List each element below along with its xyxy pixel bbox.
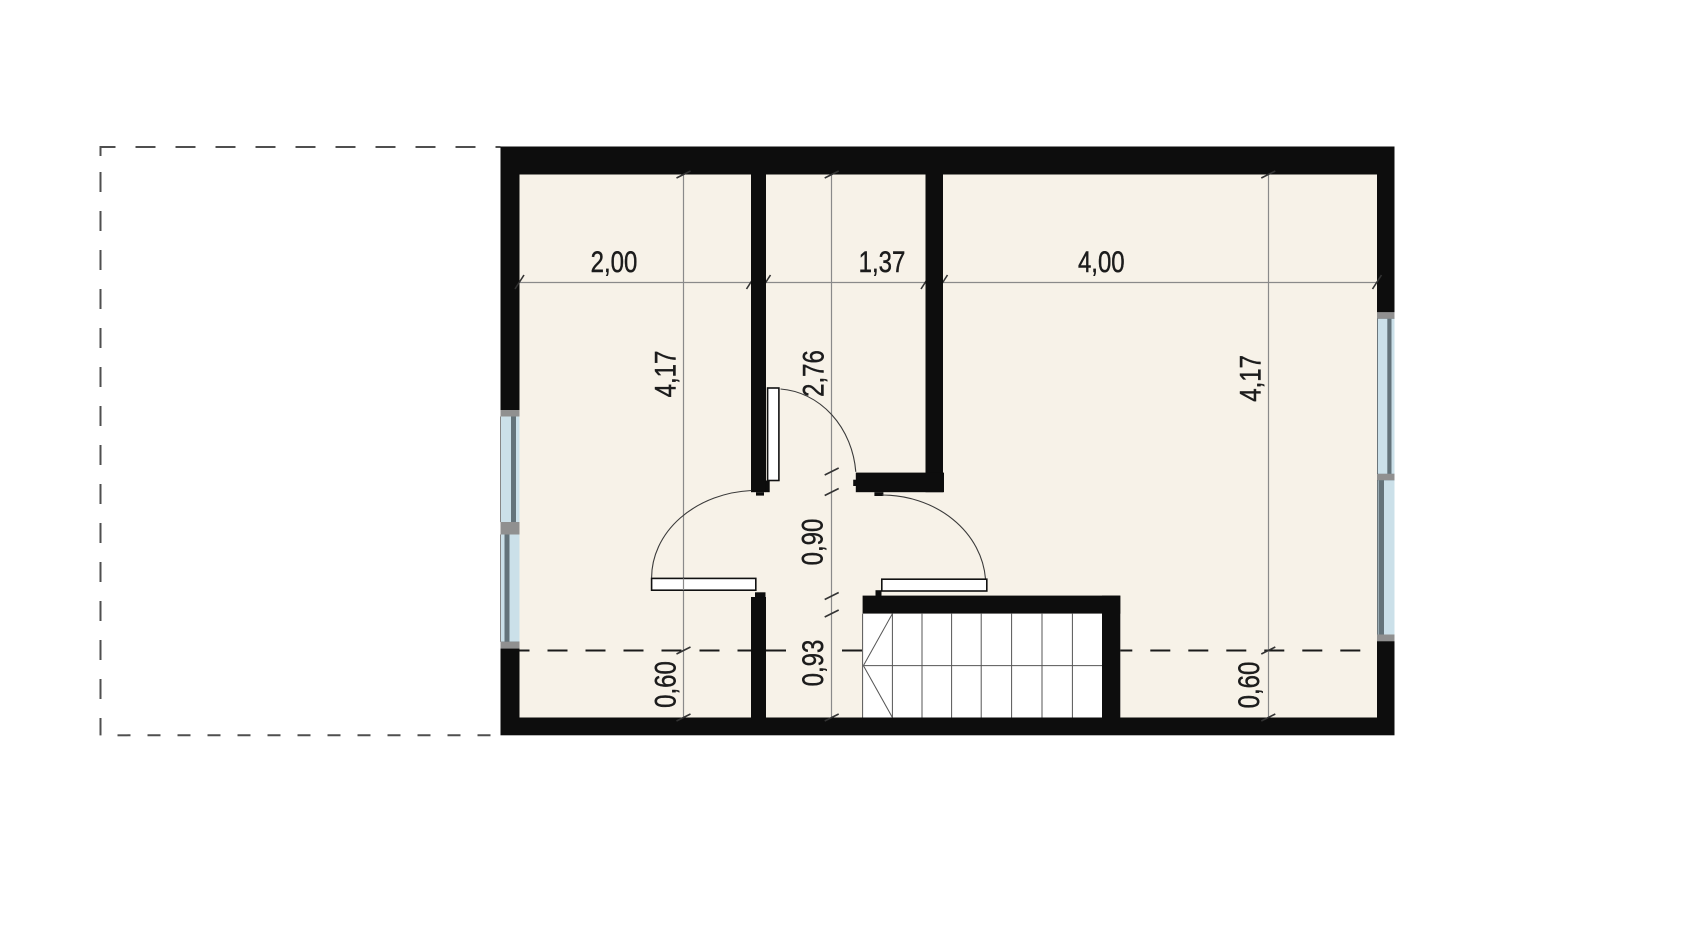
svg-text:2,76: 2,76 (796, 350, 830, 397)
svg-text:0,90: 0,90 (795, 519, 829, 566)
svg-text:0,60: 0,60 (648, 661, 682, 708)
svg-text:4,17: 4,17 (1233, 355, 1267, 402)
svg-text:0,93: 0,93 (795, 640, 829, 687)
svg-text:1,37: 1,37 (859, 244, 906, 278)
svg-text:4,17: 4,17 (648, 351, 682, 398)
svg-text:4,00: 4,00 (1078, 244, 1125, 278)
svg-text:0,60: 0,60 (1231, 662, 1265, 709)
svg-text:2,00: 2,00 (591, 244, 638, 278)
